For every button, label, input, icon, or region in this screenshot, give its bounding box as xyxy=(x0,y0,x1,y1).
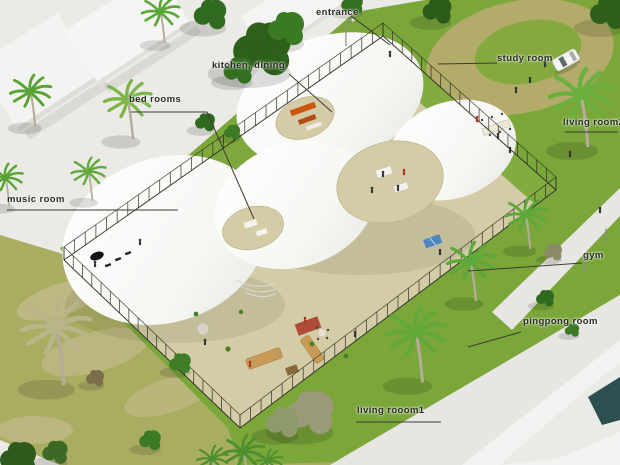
label-entrance: entrance xyxy=(316,8,359,18)
label-music-room: music room xyxy=(7,195,65,205)
person-figure xyxy=(371,187,374,194)
label-living-room1: living rooom1 xyxy=(357,406,424,416)
person-figure xyxy=(497,133,500,140)
person-figure xyxy=(382,171,385,178)
site-render: entrance kitchen, dining study room bed … xyxy=(0,0,620,465)
person-figure xyxy=(509,147,512,154)
label-bed-rooms: bed rooms xyxy=(129,95,181,105)
person-figure xyxy=(529,77,532,84)
person-figure xyxy=(389,51,392,58)
label-pingpong-room: pingpong room xyxy=(523,317,598,327)
person-figure xyxy=(403,169,406,176)
person-figure xyxy=(304,317,307,324)
person-figure xyxy=(94,261,97,268)
person-figure xyxy=(569,151,572,158)
person-figure xyxy=(439,249,442,256)
person-figure xyxy=(476,116,479,123)
person-figure xyxy=(515,87,518,94)
person-figure xyxy=(397,185,400,192)
label-study-room: study room xyxy=(497,54,553,64)
person-figure xyxy=(249,361,252,368)
person-figure xyxy=(354,331,357,338)
person-figure xyxy=(139,239,142,246)
label-kitchen-dining: kitchen, dining xyxy=(212,61,285,71)
person-figure xyxy=(599,207,602,214)
scene-svg xyxy=(0,0,620,465)
label-gym: gym xyxy=(583,251,604,261)
label-living-room2: living room2 xyxy=(563,118,620,128)
person-figure xyxy=(204,339,207,346)
